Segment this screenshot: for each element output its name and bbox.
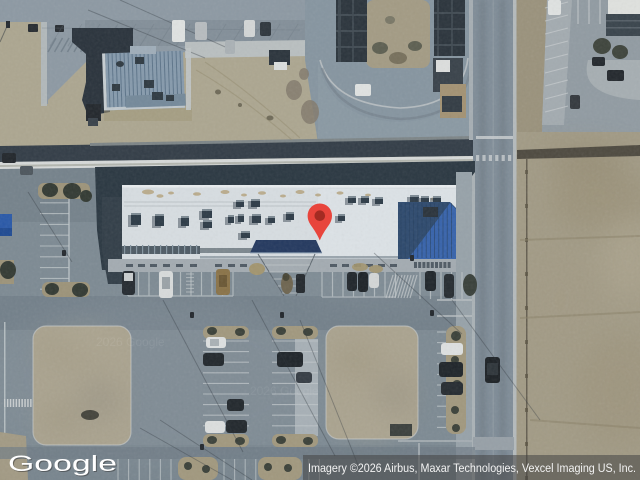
svg-text:Google: Google [8, 451, 117, 476]
svg-text:2026 Google: 2026 Google [250, 384, 319, 398]
svg-text:Imagery ©2026 Airbus, Maxar Te: Imagery ©2026 Airbus, Maxar Technologies… [308, 461, 636, 475]
svg-text:2026 Google: 2026 Google [96, 335, 165, 349]
